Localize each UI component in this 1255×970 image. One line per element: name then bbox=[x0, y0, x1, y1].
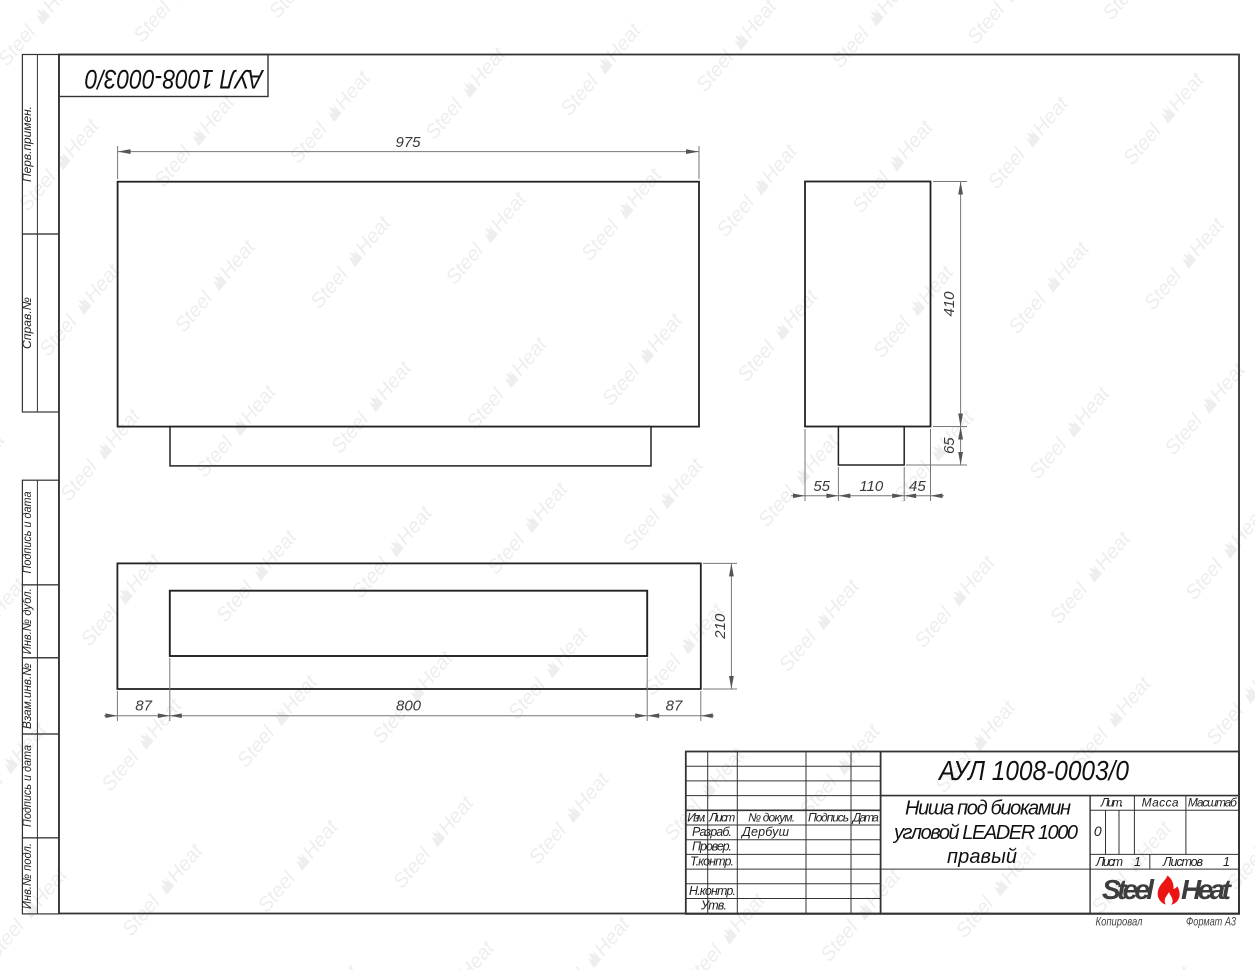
svg-text:Копировал: Копировал bbox=[1096, 915, 1143, 929]
svg-text:Подпись и дата: Подпись и дата bbox=[20, 491, 34, 573]
svg-text:АУЛ 1008-0003/0: АУЛ 1008-0003/0 bbox=[85, 64, 265, 94]
svg-text:№ докум.: № докум. bbox=[748, 811, 795, 825]
svg-text:Инв.№ дубл.: Инв.№ дубл. bbox=[20, 588, 34, 654]
svg-text:1: 1 bbox=[1134, 855, 1141, 869]
svg-text:410: 410 bbox=[941, 291, 958, 317]
svg-text:87: 87 bbox=[135, 698, 152, 715]
svg-text:Формат А3: Формат А3 bbox=[1186, 915, 1236, 929]
svg-text:800: 800 bbox=[396, 698, 422, 715]
svg-text:Ниша под биокамин: Ниша под биокамин bbox=[905, 798, 1071, 820]
svg-text:Взам.инв.№: Взам.инв.№ bbox=[20, 663, 34, 729]
svg-text:975: 975 bbox=[395, 134, 421, 151]
svg-text:Справ.№: Справ.№ bbox=[20, 297, 34, 349]
svg-text:65: 65 bbox=[941, 437, 958, 454]
svg-text:45: 45 bbox=[909, 478, 926, 495]
svg-text:Лист: Лист bbox=[708, 811, 735, 825]
svg-text:Подпись и дата: Подпись и дата bbox=[20, 745, 34, 827]
svg-text:Изм.: Изм. bbox=[687, 811, 706, 825]
svg-text:Листов: Листов bbox=[1162, 855, 1203, 869]
svg-text:87: 87 bbox=[666, 698, 683, 715]
svg-text:Масса: Масса bbox=[1142, 796, 1179, 810]
svg-text:Провер.: Провер. bbox=[692, 840, 732, 854]
svg-text:Heat: Heat bbox=[1181, 874, 1233, 905]
svg-text:Разраб.: Разраб. bbox=[692, 825, 732, 839]
svg-text:Инв.№ подл.: Инв.№ подл. bbox=[20, 843, 34, 909]
svg-text:1: 1 bbox=[1223, 855, 1230, 869]
svg-text:Лит.: Лит. bbox=[1100, 796, 1124, 810]
svg-text:Масштаб: Масштаб bbox=[1188, 796, 1238, 810]
svg-text:АУЛ 1008-0003/0: АУЛ 1008-0003/0 bbox=[937, 755, 1129, 786]
svg-text:Steel: Steel bbox=[1102, 874, 1155, 905]
svg-text:угловой LEADER 1000: угловой LEADER 1000 bbox=[892, 822, 1078, 844]
svg-text:Лист: Лист bbox=[1095, 855, 1123, 869]
svg-text:Дербуш: Дербуш bbox=[740, 825, 790, 839]
svg-text:Н.контр.: Н.контр. bbox=[689, 884, 736, 898]
svg-text:110: 110 bbox=[859, 478, 884, 495]
svg-text:Перв.примен.: Перв.примен. bbox=[20, 106, 34, 182]
svg-text:Дата: Дата bbox=[851, 811, 879, 825]
svg-text:55: 55 bbox=[813, 478, 830, 495]
svg-text:Подпись: Подпись bbox=[808, 811, 849, 825]
svg-text:0: 0 bbox=[1094, 823, 1102, 839]
svg-text:Т.контр.: Т.контр. bbox=[690, 854, 734, 868]
svg-text:210: 210 bbox=[712, 613, 729, 640]
svg-text:Утв.: Утв. bbox=[700, 899, 727, 913]
svg-text:правый: правый bbox=[947, 846, 1017, 868]
